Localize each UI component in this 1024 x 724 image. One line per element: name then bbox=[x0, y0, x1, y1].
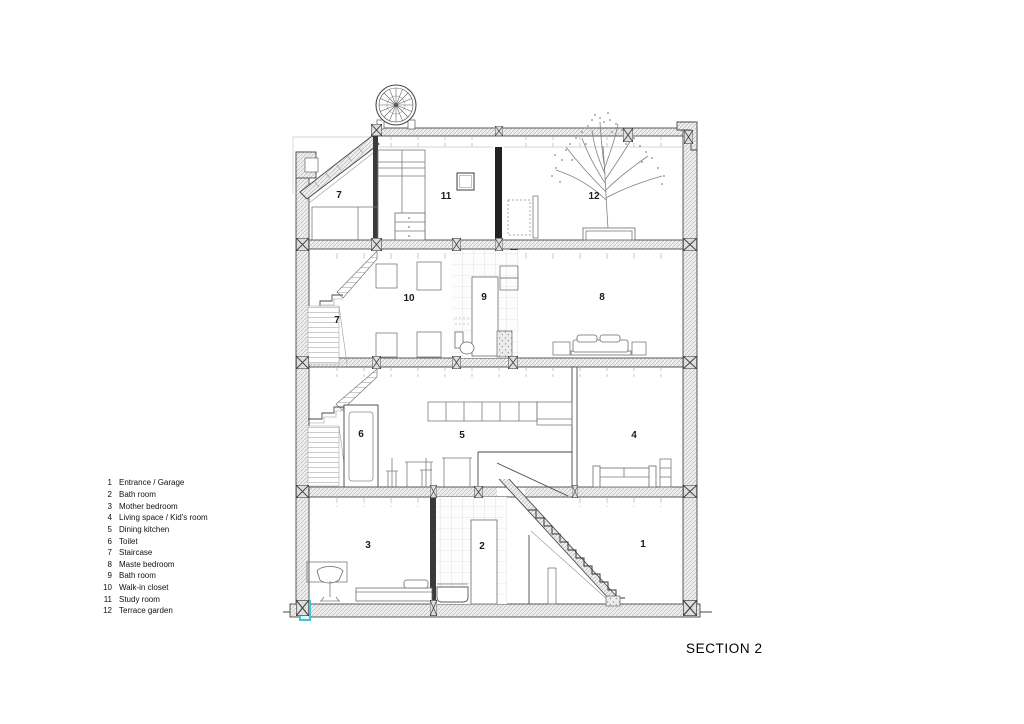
drawing-title: SECTION 2 bbox=[686, 641, 763, 656]
legend-label: Living space / Kid's room bbox=[119, 513, 208, 522]
legend-item: 7Staircase bbox=[100, 547, 208, 559]
legend-label: Terrace garden bbox=[119, 606, 173, 615]
legend-num: 11 bbox=[100, 595, 112, 604]
legend-label: Walk-in closet bbox=[119, 583, 169, 592]
label-terrace: 12 bbox=[588, 191, 600, 202]
legend-item: 10Walk-in closet bbox=[100, 582, 208, 594]
legend-label: Maste bedroom bbox=[119, 560, 175, 569]
label-bath-upper: 9 bbox=[481, 292, 487, 303]
legend-label: Mother bedroom bbox=[119, 502, 178, 511]
label-staircase-top: 7 bbox=[336, 190, 342, 201]
legend-label: Bath room bbox=[119, 571, 156, 580]
room-staircase-top bbox=[312, 207, 377, 240]
room-dining-kitchen bbox=[386, 402, 572, 496]
legend-num: 6 bbox=[100, 537, 112, 546]
staircase-mid-flights bbox=[308, 251, 377, 364]
legend-item: 1Entrance / Garage bbox=[100, 477, 208, 489]
label-master: 8 bbox=[599, 292, 605, 303]
legend-num: 9 bbox=[100, 571, 112, 580]
legend-label: Study room bbox=[119, 595, 160, 604]
legend-item: 9Bath room bbox=[100, 570, 208, 582]
legend-num: 5 bbox=[100, 525, 112, 534]
room-bath-upper bbox=[452, 250, 518, 358]
legend-num: 1 bbox=[100, 478, 112, 487]
room-mother-bedroom bbox=[307, 562, 432, 601]
legend-item: 2Bath room bbox=[100, 489, 208, 501]
room-master-bed bbox=[553, 335, 646, 355]
room-living-sofa bbox=[593, 459, 671, 487]
legend-label: Dining kitchen bbox=[119, 525, 169, 534]
legend-label: Entrance / Garage bbox=[119, 478, 184, 487]
legend-item: 8Maste bedroom bbox=[100, 558, 208, 570]
ground bbox=[283, 604, 712, 617]
legend-num: 12 bbox=[100, 606, 112, 615]
tree-leaves bbox=[551, 112, 665, 185]
legend-num: 10 bbox=[100, 583, 112, 592]
roof-dome-ventilator bbox=[376, 85, 416, 129]
legend-num: 4 bbox=[100, 513, 112, 522]
legend-label: Bath room bbox=[119, 490, 156, 499]
label-mother: 3 bbox=[365, 540, 371, 551]
legend-item: 12Terrace garden bbox=[100, 605, 208, 617]
room-walkin-closet bbox=[376, 262, 441, 357]
legend-item: 6Toilet bbox=[100, 535, 208, 547]
legend-num: 7 bbox=[100, 548, 112, 557]
label-dining: 5 bbox=[459, 430, 465, 441]
page: 7 11 12 7 10 9 8 6 5 4 3 2 1 1Entrance /… bbox=[0, 0, 1024, 724]
label-study: 11 bbox=[441, 191, 452, 202]
room-bath-lower bbox=[437, 497, 507, 604]
room-toilet bbox=[344, 405, 378, 487]
label-living: 4 bbox=[631, 430, 637, 441]
legend-num: 2 bbox=[100, 490, 112, 499]
label-walkin: 10 bbox=[403, 293, 415, 304]
label-bath-lower: 2 bbox=[479, 541, 485, 552]
label-toilet: 6 bbox=[358, 429, 364, 440]
legend-label: Staircase bbox=[119, 548, 152, 557]
legend-label: Toilet bbox=[119, 537, 138, 546]
legend-num: 8 bbox=[100, 560, 112, 569]
legend-item: 3Mother bedroom bbox=[100, 500, 208, 512]
label-entrance: 1 bbox=[640, 539, 646, 550]
legend-item: 5Dining kitchen bbox=[100, 524, 208, 536]
legend-num: 3 bbox=[100, 502, 112, 511]
room-study-wardrobe bbox=[378, 150, 474, 240]
legend-item: 4Living space / Kid's room bbox=[100, 512, 208, 524]
room-legend: 1Entrance / Garage 2Bath room 3Mother be… bbox=[100, 477, 208, 617]
legend-item: 11Study room bbox=[100, 593, 208, 605]
label-staircase-mid: 7 bbox=[334, 315, 340, 326]
